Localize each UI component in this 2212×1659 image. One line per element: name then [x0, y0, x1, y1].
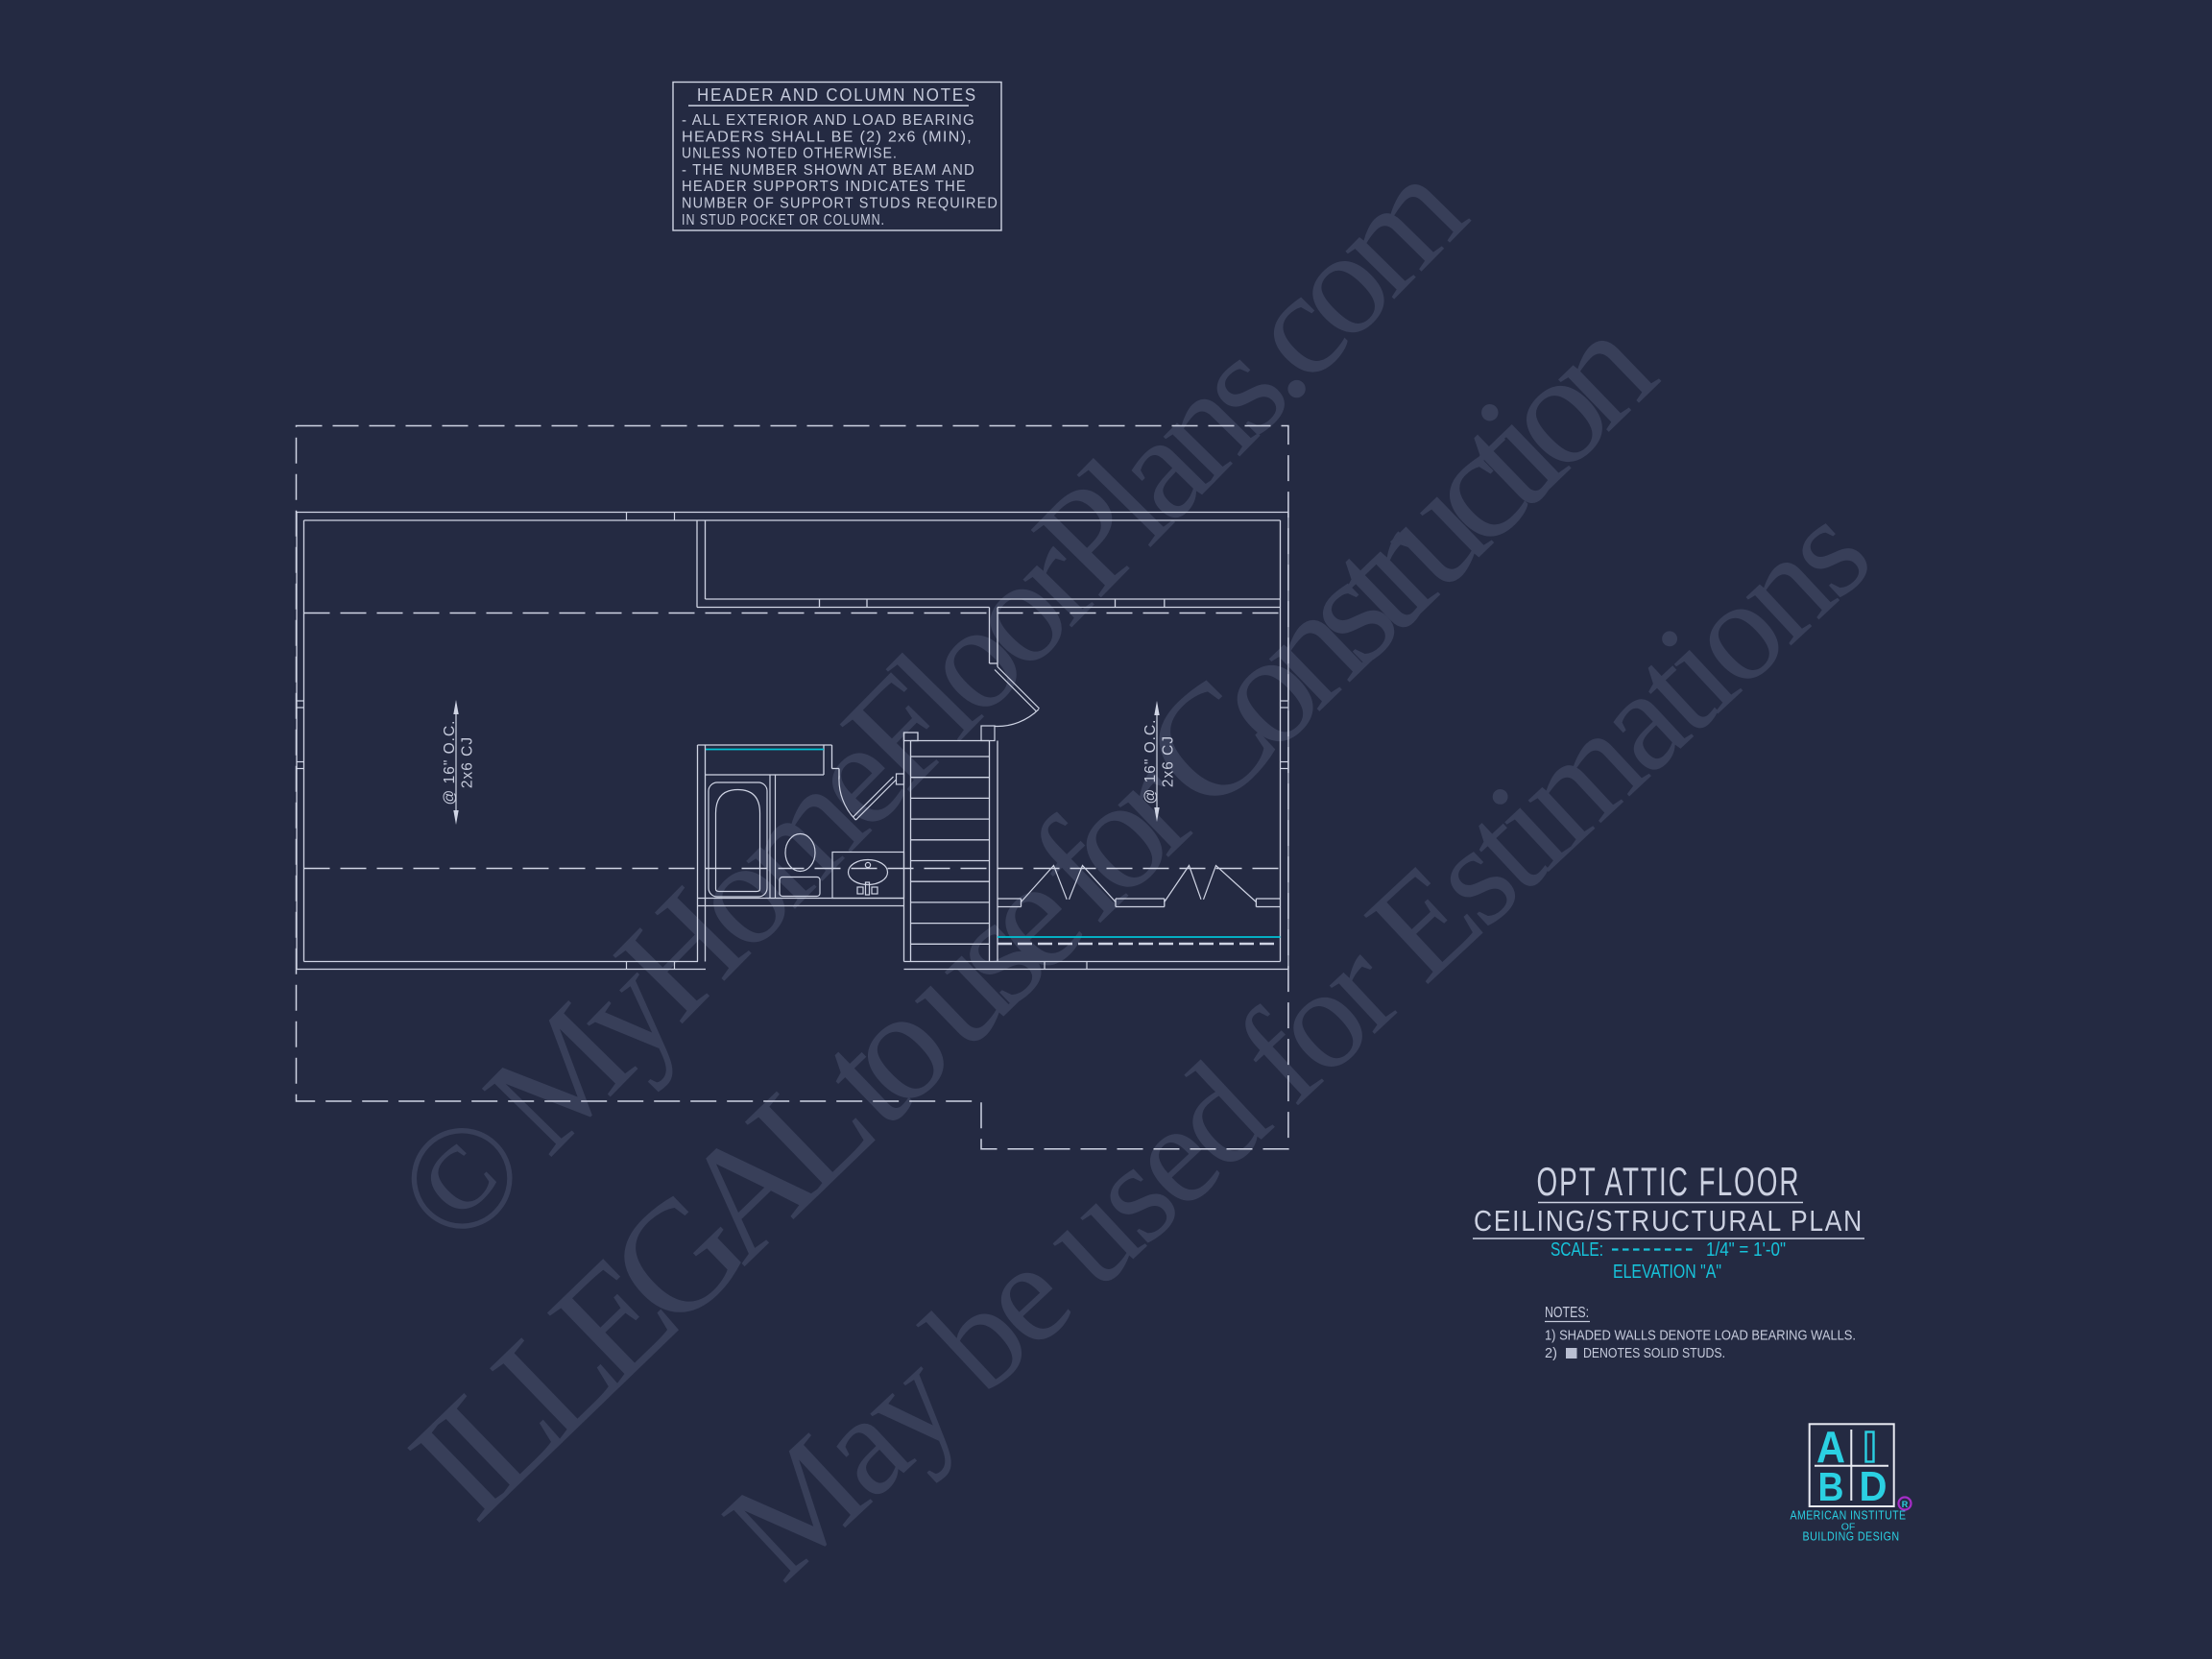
- svg-text:D: D: [1860, 1463, 1887, 1510]
- svg-text:2x6 CJ: 2x6 CJ: [460, 736, 476, 788]
- svg-text:IN STUD POCKET OR COLUMN.: IN STUD POCKET OR COLUMN.: [682, 212, 885, 228]
- svg-text:OPT ATTIC FLOOR: OPT ATTIC FLOOR: [1537, 1159, 1801, 1204]
- svg-text:NUMBER OF SUPPORT STUDS REQUIR: NUMBER OF SUPPORT STUDS REQUIRED: [682, 196, 998, 212]
- svg-text:@ 16" O.C.: @ 16" O.C.: [442, 720, 458, 805]
- svg-text:R: R: [1902, 1500, 1909, 1509]
- svg-text:DENOTES SOLID STUDS.: DENOTES SOLID STUDS.: [1583, 1346, 1725, 1361]
- svg-text:2): 2): [1545, 1346, 1557, 1361]
- svg-text:2x6 CJ: 2x6 CJ: [1161, 735, 1177, 787]
- svg-text:UNLESS NOTED OTHERWISE.: UNLESS NOTED OTHERWISE.: [682, 146, 898, 162]
- svg-text:@ 16" O.C.: @ 16" O.C.: [1142, 719, 1159, 805]
- svg-text:CEILING/STRUCTURAL PLAN: CEILING/STRUCTURAL PLAN: [1474, 1204, 1863, 1238]
- svg-text:- THE NUMBER SHOWN AT BEAM AND: - THE NUMBER SHOWN AT BEAM AND: [682, 162, 975, 179]
- svg-text:HEADER AND COLUMN NOTES: HEADER AND COLUMN NOTES: [697, 84, 977, 105]
- svg-text:1/4" = 1'-0": 1/4" = 1'-0": [1706, 1239, 1786, 1261]
- svg-text:SCALE:: SCALE:: [1551, 1239, 1603, 1261]
- svg-text:ELEVATION "A": ELEVATION "A": [1613, 1262, 1721, 1283]
- svg-text:B: B: [1818, 1464, 1844, 1509]
- svg-text:BUILDING DESIGN: BUILDING DESIGN: [1803, 1530, 1900, 1544]
- svg-text:HEADER SUPPORTS INDICATES THE: HEADER SUPPORTS INDICATES THE: [682, 179, 967, 195]
- svg-text:- ALL EXTERIOR AND LOAD BEARIN: - ALL EXTERIOR AND LOAD BEARING: [682, 112, 975, 129]
- svg-text:NOTES:: NOTES:: [1545, 1305, 1589, 1321]
- svg-text:HEADERS SHALL BE (2) 2x6 (MIN): HEADERS SHALL BE (2) 2x6 (MIN),: [682, 129, 973, 145]
- svg-text:1) SHADED WALLS DENOTE LOAD BE: 1) SHADED WALLS DENOTE LOAD BEARING WALL…: [1545, 1329, 1856, 1344]
- svg-text:AMERICAN INSTITUTE: AMERICAN INSTITUTE: [1791, 1509, 1907, 1523]
